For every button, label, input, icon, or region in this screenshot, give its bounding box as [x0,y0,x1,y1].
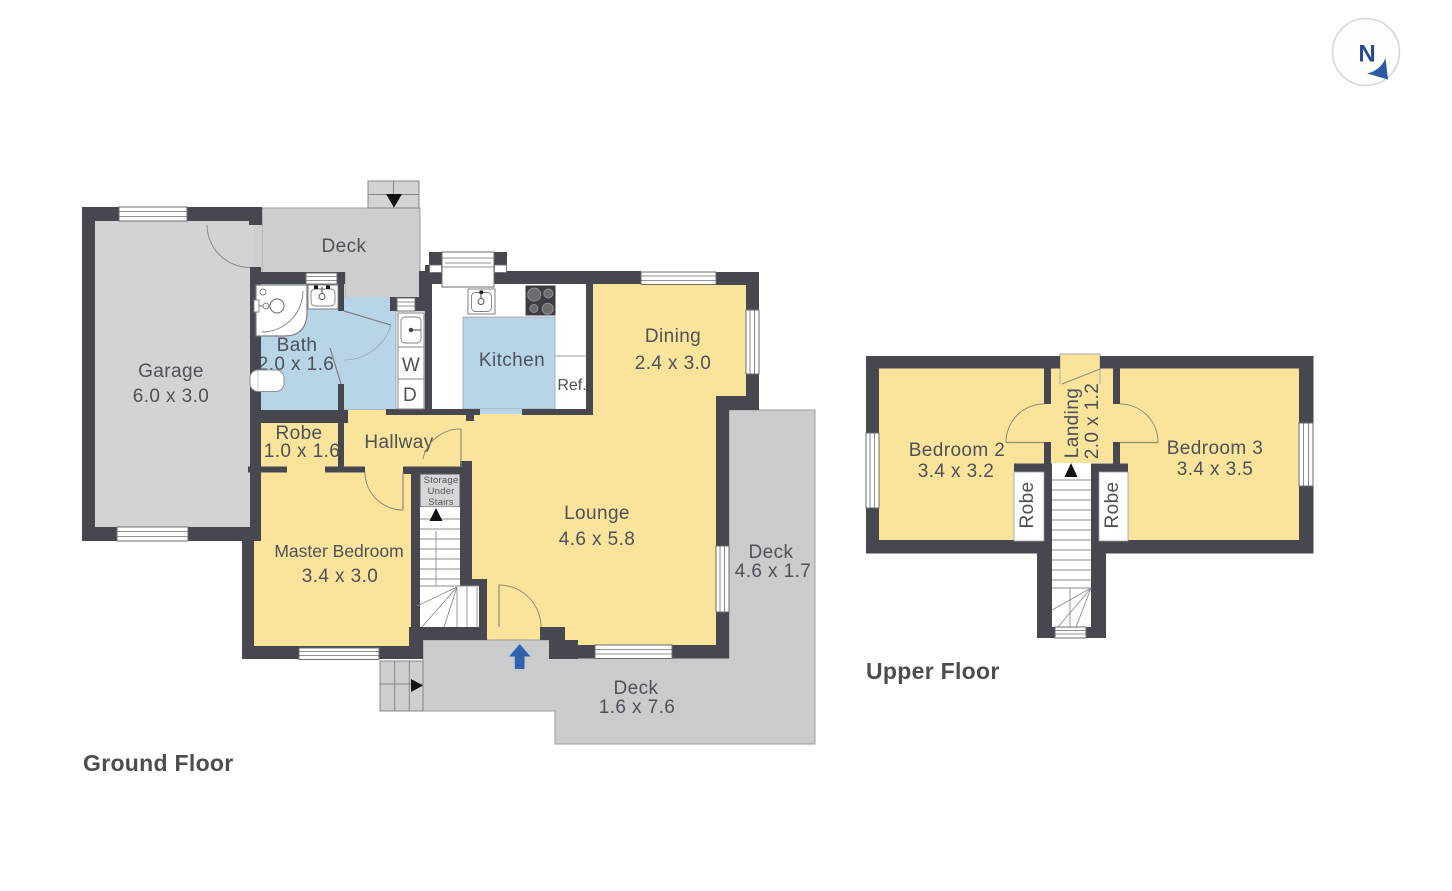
svg-text:3.4 x 3.2: 3.4 x 3.2 [918,461,994,482]
svg-text:6.0 x 3.0: 6.0 x 3.0 [133,386,209,407]
svg-text:1.0 x 1.6: 1.0 x 1.6 [264,441,340,462]
svg-text:W: W [402,355,420,376]
svg-text:Storage: Storage [424,475,459,486]
svg-text:N: N [1358,41,1375,68]
svg-text:Deck: Deck [749,542,794,563]
svg-text:2.0 x 1.2: 2.0 x 1.2 [1082,383,1103,459]
svg-text:Robe: Robe [1102,481,1123,528]
svg-text:1.6 x 7.6: 1.6 x 7.6 [599,697,675,718]
svg-text:Garage: Garage [138,361,204,382]
svg-text:Deck: Deck [322,236,367,257]
svg-text:Dining: Dining [645,326,701,347]
svg-text:2.4 x 3.0: 2.4 x 3.0 [635,353,711,374]
svg-text:Landing: Landing [1062,388,1083,458]
svg-text:Stairs: Stairs [428,497,454,508]
svg-text:3.4 x 3.5: 3.4 x 3.5 [1177,459,1253,480]
svg-text:Bedroom 2: Bedroom 2 [909,440,1006,461]
svg-text:Ground Floor: Ground Floor [83,750,234,776]
svg-text:Upper Floor: Upper Floor [866,658,1000,684]
svg-text:Kitchen: Kitchen [479,350,545,371]
svg-text:Bath: Bath [277,335,318,356]
svg-text:Robe: Robe [1017,481,1038,528]
svg-text:Hallway: Hallway [364,432,433,453]
svg-text:Bedroom 3: Bedroom 3 [1167,438,1264,459]
svg-text:3.4 x 3.0: 3.4 x 3.0 [302,566,378,587]
svg-text:Deck: Deck [614,678,659,699]
svg-text:Under: Under [428,486,455,497]
svg-text:4.6 x 5.8: 4.6 x 5.8 [559,529,635,550]
svg-text:4.6 x 1.7: 4.6 x 1.7 [735,561,811,582]
svg-text:Master Bedroom: Master Bedroom [274,541,403,561]
svg-text:Ref.: Ref. [557,377,586,394]
svg-text:Lounge: Lounge [564,503,630,524]
svg-text:D: D [403,385,417,406]
